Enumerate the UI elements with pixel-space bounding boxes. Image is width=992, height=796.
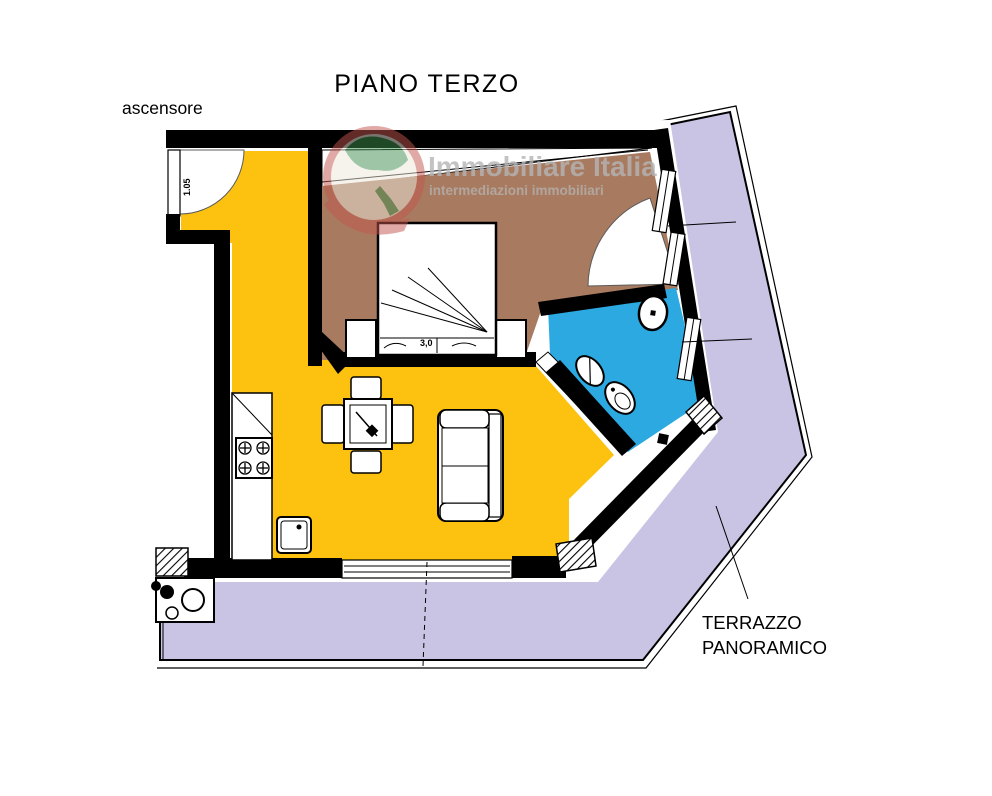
floorplan-svg: 3,0 1.05 Immobiliare Italia intermediazi…	[0, 0, 992, 796]
pillar-bottom-right	[556, 538, 596, 572]
entrance-door-leaf	[168, 150, 180, 216]
pillar-bottom-left	[156, 548, 188, 576]
chair-icon	[351, 377, 381, 399]
watermark-tagline: intermediazioni immobiliari	[429, 183, 604, 198]
nightstand-icon	[346, 320, 376, 358]
stove-icon	[236, 438, 272, 478]
chair-icon	[391, 405, 413, 443]
bathroom-floor-dot	[576, 388, 580, 392]
elevator-label: ascensore	[122, 98, 203, 118]
sink-icon	[277, 517, 311, 553]
floorplan-page: 3,0 1.05 Immobiliare Italia intermediazi…	[0, 0, 992, 796]
nightstand-icon	[496, 320, 526, 358]
page-title: PIANO TERZO	[334, 70, 520, 98]
bed-dimension-label: 3,0	[420, 338, 433, 348]
sofa-icon	[438, 410, 503, 521]
chair-icon	[322, 405, 344, 443]
terrace-label-line2: PANORAMICO	[702, 637, 827, 658]
door-dimension-label: 1.05	[182, 178, 192, 196]
dining-table-icon	[344, 399, 392, 449]
terrace-label-line1: TERRAZZO	[702, 612, 802, 633]
corridor-column	[657, 433, 669, 445]
watermark-name: Immobiliare Italia	[428, 151, 657, 182]
chair-icon	[351, 451, 381, 473]
